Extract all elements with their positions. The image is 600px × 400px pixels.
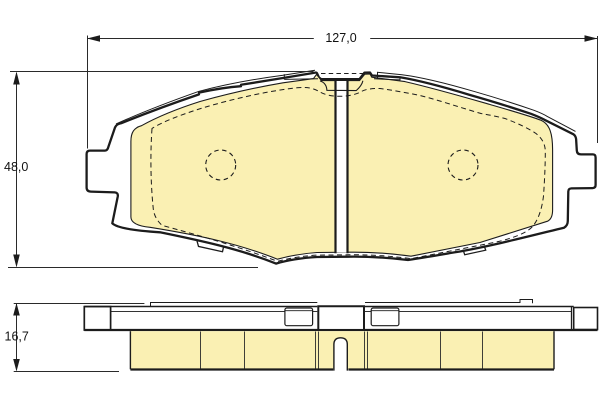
svg-text:16,7: 16,7 xyxy=(5,329,29,343)
svg-text:48,0: 48,0 xyxy=(4,160,28,174)
svg-text:127,0: 127,0 xyxy=(325,31,356,45)
